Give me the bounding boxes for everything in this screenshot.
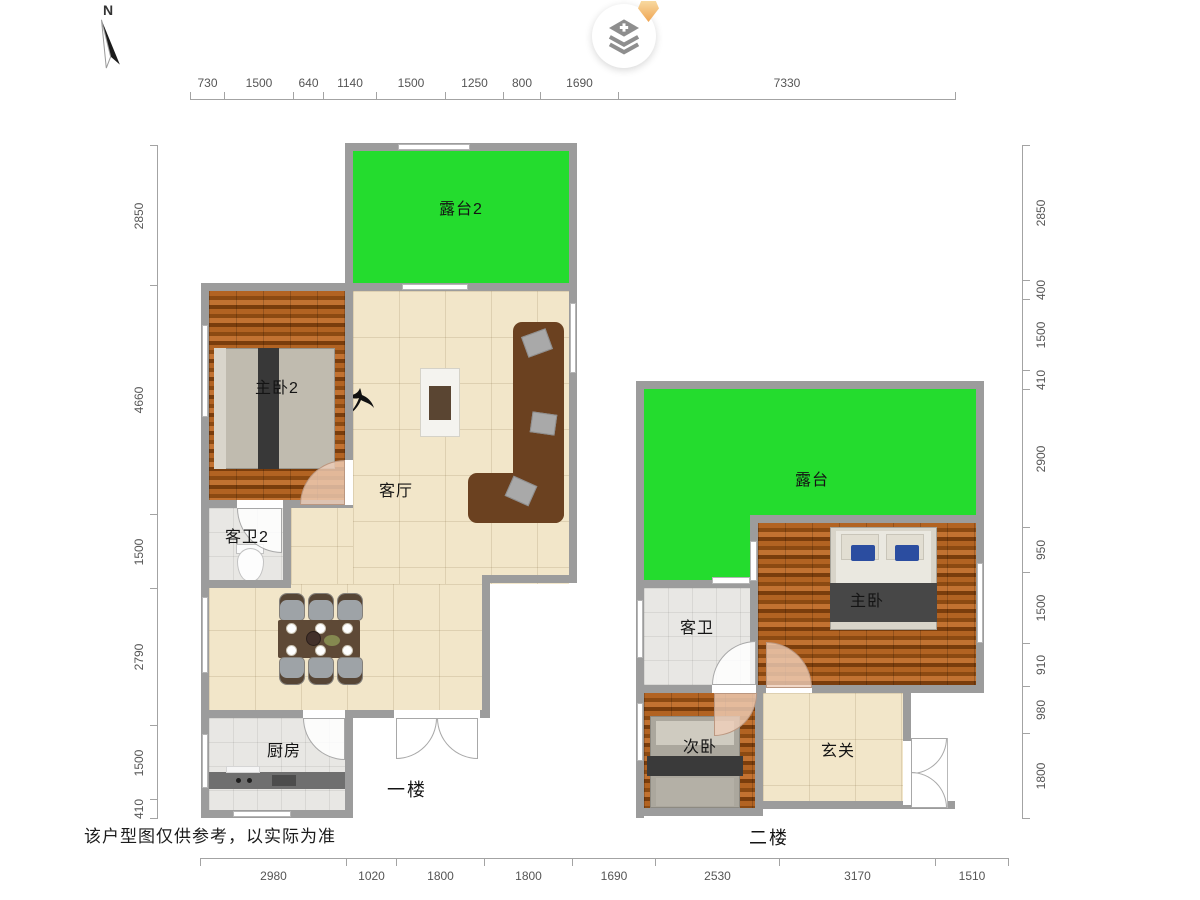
- ruler-segment: 950: [1022, 527, 1030, 572]
- compass-needle-icon: [80, 15, 136, 77]
- room-label-terrace: 露台: [795, 473, 829, 489]
- window: [750, 541, 757, 581]
- wall: [201, 283, 577, 291]
- room-label-second-bedroom: 次卧: [683, 740, 717, 756]
- wall: [976, 381, 984, 693]
- ruler-right: 2850 400 1500 410 2900 950 1500 910 980 …: [1022, 145, 1030, 819]
- room-label-entry-hall: 玄关: [821, 744, 855, 760]
- wall: [345, 283, 353, 460]
- window: [637, 703, 643, 761]
- ruler-segment: 2850: [1022, 145, 1030, 280]
- plate: [286, 623, 297, 634]
- ruler-segment: 730: [190, 92, 224, 100]
- dimension-label: 1800: [515, 869, 542, 883]
- dimension-label: 1500: [1034, 595, 1048, 622]
- bed-runner: [647, 756, 743, 776]
- ruler-segment: 1020: [346, 858, 396, 866]
- dimension-label: 2790: [132, 644, 146, 671]
- kitchen-sink: [226, 766, 260, 773]
- room-living-corridor-floor: [291, 500, 353, 588]
- ruler-segment: 7330: [618, 92, 956, 100]
- ruler-segment: 1500: [150, 725, 158, 799]
- window: [233, 811, 291, 817]
- ruler-segment: 410: [1022, 370, 1030, 389]
- dimension-label: 1690: [566, 76, 593, 90]
- ruler-segment: 1500: [376, 92, 445, 100]
- ruler-segment: 1500: [1022, 572, 1030, 643]
- dimension-label: 1500: [132, 538, 146, 565]
- dimension-label: 400: [1034, 280, 1048, 300]
- dimension-label: 640: [298, 76, 318, 90]
- ruler-segment: 410: [150, 799, 158, 819]
- dimension-label: 1500: [1034, 322, 1048, 349]
- dining-chair: [308, 593, 334, 621]
- floorplan-page: N: [0, 0, 1200, 900]
- ruler-segment: 3170: [779, 858, 935, 866]
- ruler-segment: 1800: [484, 858, 572, 866]
- dimension-label: 1020: [358, 869, 385, 883]
- room-label-bath: 客卫: [680, 621, 714, 637]
- ruler-segment: 2980: [200, 858, 346, 866]
- dimension-label: 980: [1034, 700, 1048, 720]
- cushion-blue: [851, 545, 875, 561]
- table-decor-plant: [324, 635, 340, 646]
- sofa-cushion: [530, 411, 558, 435]
- faucet-knob: [236, 778, 241, 783]
- dimension-label: 800: [512, 76, 532, 90]
- dining-chair: [337, 657, 363, 685]
- dimension-label: 1800: [427, 869, 454, 883]
- stove: [272, 775, 296, 786]
- ruler-segment: 400: [1022, 280, 1030, 299]
- wall: [201, 580, 291, 588]
- floor2-label: 二楼: [749, 829, 789, 847]
- layers-icon: [604, 16, 644, 56]
- wall: [201, 500, 237, 508]
- cushion-blue: [895, 545, 919, 561]
- dimension-label: 7330: [774, 76, 801, 90]
- dimension-label: 2980: [260, 869, 287, 883]
- door-opening: [345, 460, 353, 505]
- ruler-segment: 1500: [224, 92, 293, 100]
- ruler-segment: 1800: [1022, 733, 1030, 819]
- wall: [485, 575, 577, 583]
- door-opening: [394, 710, 480, 718]
- wall: [283, 508, 291, 588]
- wall: [750, 515, 984, 523]
- wall: [636, 381, 984, 389]
- dimension-label: 910: [1034, 655, 1048, 675]
- dimension-label: 1500: [398, 76, 425, 90]
- window: [977, 563, 983, 643]
- window: [712, 577, 750, 584]
- dimension-label: 2850: [1034, 200, 1048, 227]
- ruler-top: 730 1500 640 1140 1500 1250 800 1690 733…: [190, 92, 956, 100]
- ruler-segment: 640: [293, 92, 323, 100]
- window: [398, 144, 470, 150]
- dimension-label: 1800: [1034, 763, 1048, 790]
- dining-chair: [308, 657, 334, 685]
- dimension-label: 2530: [704, 869, 731, 883]
- room-label-bath2: 客卫2: [225, 530, 269, 546]
- dimension-label: 410: [1034, 370, 1048, 390]
- room-label-kitchen: 厨房: [267, 744, 301, 760]
- room-label-living: 客厅: [379, 484, 413, 500]
- window: [202, 734, 208, 788]
- dimension-label: 1140: [337, 76, 363, 90]
- wall: [345, 710, 353, 818]
- wall: [482, 575, 490, 718]
- dimension-label: 950: [1034, 540, 1048, 560]
- dining-chair: [279, 593, 305, 621]
- door-arc: [396, 718, 437, 759]
- door-opening: [903, 741, 911, 805]
- plate: [286, 645, 297, 656]
- ruler-segment: 1140: [323, 92, 376, 100]
- room-terrace-floor: [644, 515, 750, 583]
- wall: [755, 693, 763, 808]
- ruler-bottom: 2980 1020 1800 1800 1690 2530 3170 1510: [200, 858, 1009, 866]
- ruler-segment: 1250: [445, 92, 503, 100]
- ruler-segment: 2850: [150, 145, 158, 285]
- plate: [342, 645, 353, 656]
- ruler-segment: 1690: [540, 92, 618, 100]
- ruler-segment: 4660: [150, 285, 158, 514]
- door-opening: [237, 500, 283, 508]
- bed-headboard: [214, 348, 226, 469]
- plate: [315, 645, 326, 656]
- floor1-label: 一楼: [387, 781, 427, 799]
- window: [202, 597, 208, 673]
- dimension-label: 1500: [246, 76, 273, 90]
- ruler-segment: 2790: [150, 588, 158, 725]
- ruler-segment: 2900: [1022, 389, 1030, 527]
- ruler-segment: 1800: [396, 858, 484, 866]
- dimension-label: 410: [132, 799, 146, 819]
- ruler-segment: 1500: [150, 514, 158, 588]
- door-opening: [303, 710, 345, 718]
- coffee-table-top: [429, 386, 451, 420]
- dimension-label: 1690: [601, 869, 628, 883]
- ruler-segment: 1510: [935, 858, 1009, 866]
- wall: [903, 693, 911, 741]
- door-arc: [437, 718, 478, 759]
- compass: N: [80, 2, 136, 80]
- room-label-terrace2: 露台2: [439, 202, 483, 218]
- dimension-label: 730: [197, 76, 217, 90]
- disclaimer-text: 该户型图仅供参考，以实际为准: [84, 822, 336, 847]
- window: [570, 303, 576, 373]
- dimension-label: 2850: [132, 202, 146, 229]
- wall: [636, 808, 763, 816]
- dimension-label: 1500: [132, 749, 146, 776]
- dimension-label: 3170: [844, 869, 871, 883]
- ruler-segment: 2530: [655, 858, 779, 866]
- window: [402, 284, 468, 290]
- window: [637, 600, 643, 658]
- room-terrace-floor: [644, 389, 976, 515]
- ruler-left: 2850 4660 1500 2790 1500 410: [150, 145, 158, 819]
- dining-chair: [279, 657, 305, 685]
- bed-runner: [258, 348, 279, 469]
- dimension-label: 2900: [1034, 445, 1048, 472]
- ruler-segment: 910: [1022, 643, 1030, 686]
- bed-foot: [656, 778, 734, 806]
- wall: [345, 143, 353, 291]
- room-label-master: 主卧: [850, 594, 884, 610]
- dimension-label: 1250: [461, 76, 488, 90]
- dimension-label: 4660: [132, 387, 146, 414]
- dimension-label: 1510: [959, 869, 986, 883]
- ruler-segment: 800: [503, 92, 540, 100]
- layers-button[interactable]: [592, 4, 656, 68]
- ruler-segment: 1500: [1022, 299, 1030, 370]
- table-decor-pot: [306, 631, 321, 646]
- window: [202, 325, 208, 417]
- plate: [342, 623, 353, 634]
- dining-chair: [337, 593, 363, 621]
- ruler-segment: 1690: [572, 858, 655, 866]
- faucet-knob: [247, 778, 252, 783]
- ruler-segment: 980: [1022, 686, 1030, 733]
- door-opening: [712, 685, 756, 693]
- room-label-bedroom2: 主卧2: [255, 381, 299, 397]
